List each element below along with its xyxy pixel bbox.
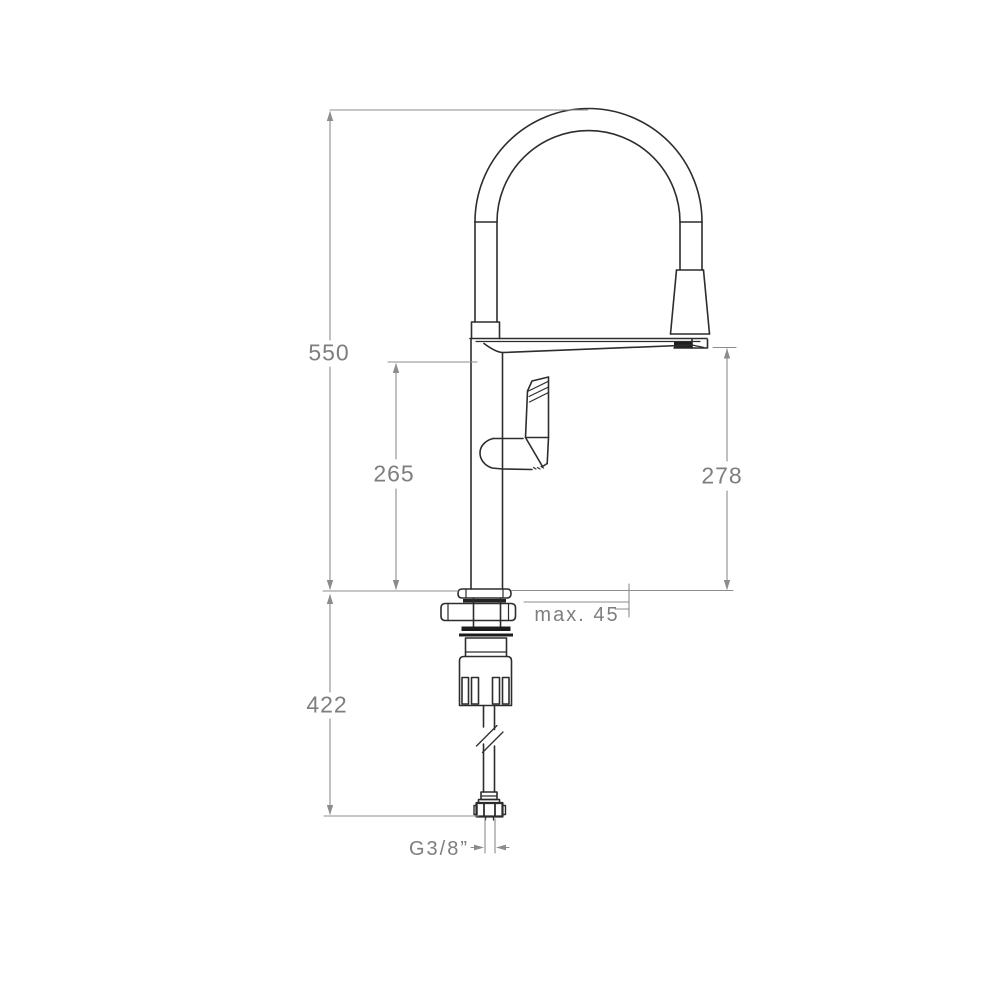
dim-label-total-height: 550: [308, 342, 349, 365]
technical-drawing-page: 550 265 278 max. 45 422 G3/8”: [0, 0, 1000, 1000]
faucet-technical-drawing: [0, 0, 1000, 1000]
faucet-outline: [441, 108, 710, 820]
supply-hose: [477, 706, 504, 804]
dim-label-deck-thickness: max. 45: [534, 605, 619, 625]
base-flange: [458, 589, 511, 598]
spout-left-tube: [472, 222, 500, 339]
spout-arc: [475, 108, 702, 222]
dim-label-outlet-height: 278: [701, 465, 742, 488]
mounting-hardware: [441, 598, 516, 706]
handle-pivot: [480, 439, 532, 470]
spray-head: [671, 222, 710, 348]
dim-g38: [471, 819, 509, 853]
body-column: [471, 339, 503, 590]
dim-label-hose-length: 422: [306, 694, 347, 717]
hose-fitting: [474, 803, 506, 820]
dim-label-connection-thread: G3/8”: [409, 839, 469, 859]
countertop-line: [323, 591, 733, 592]
dim-label-spout-height: 265: [373, 463, 414, 486]
spout-arm: [470, 339, 707, 353]
handle-lever: [526, 377, 549, 469]
